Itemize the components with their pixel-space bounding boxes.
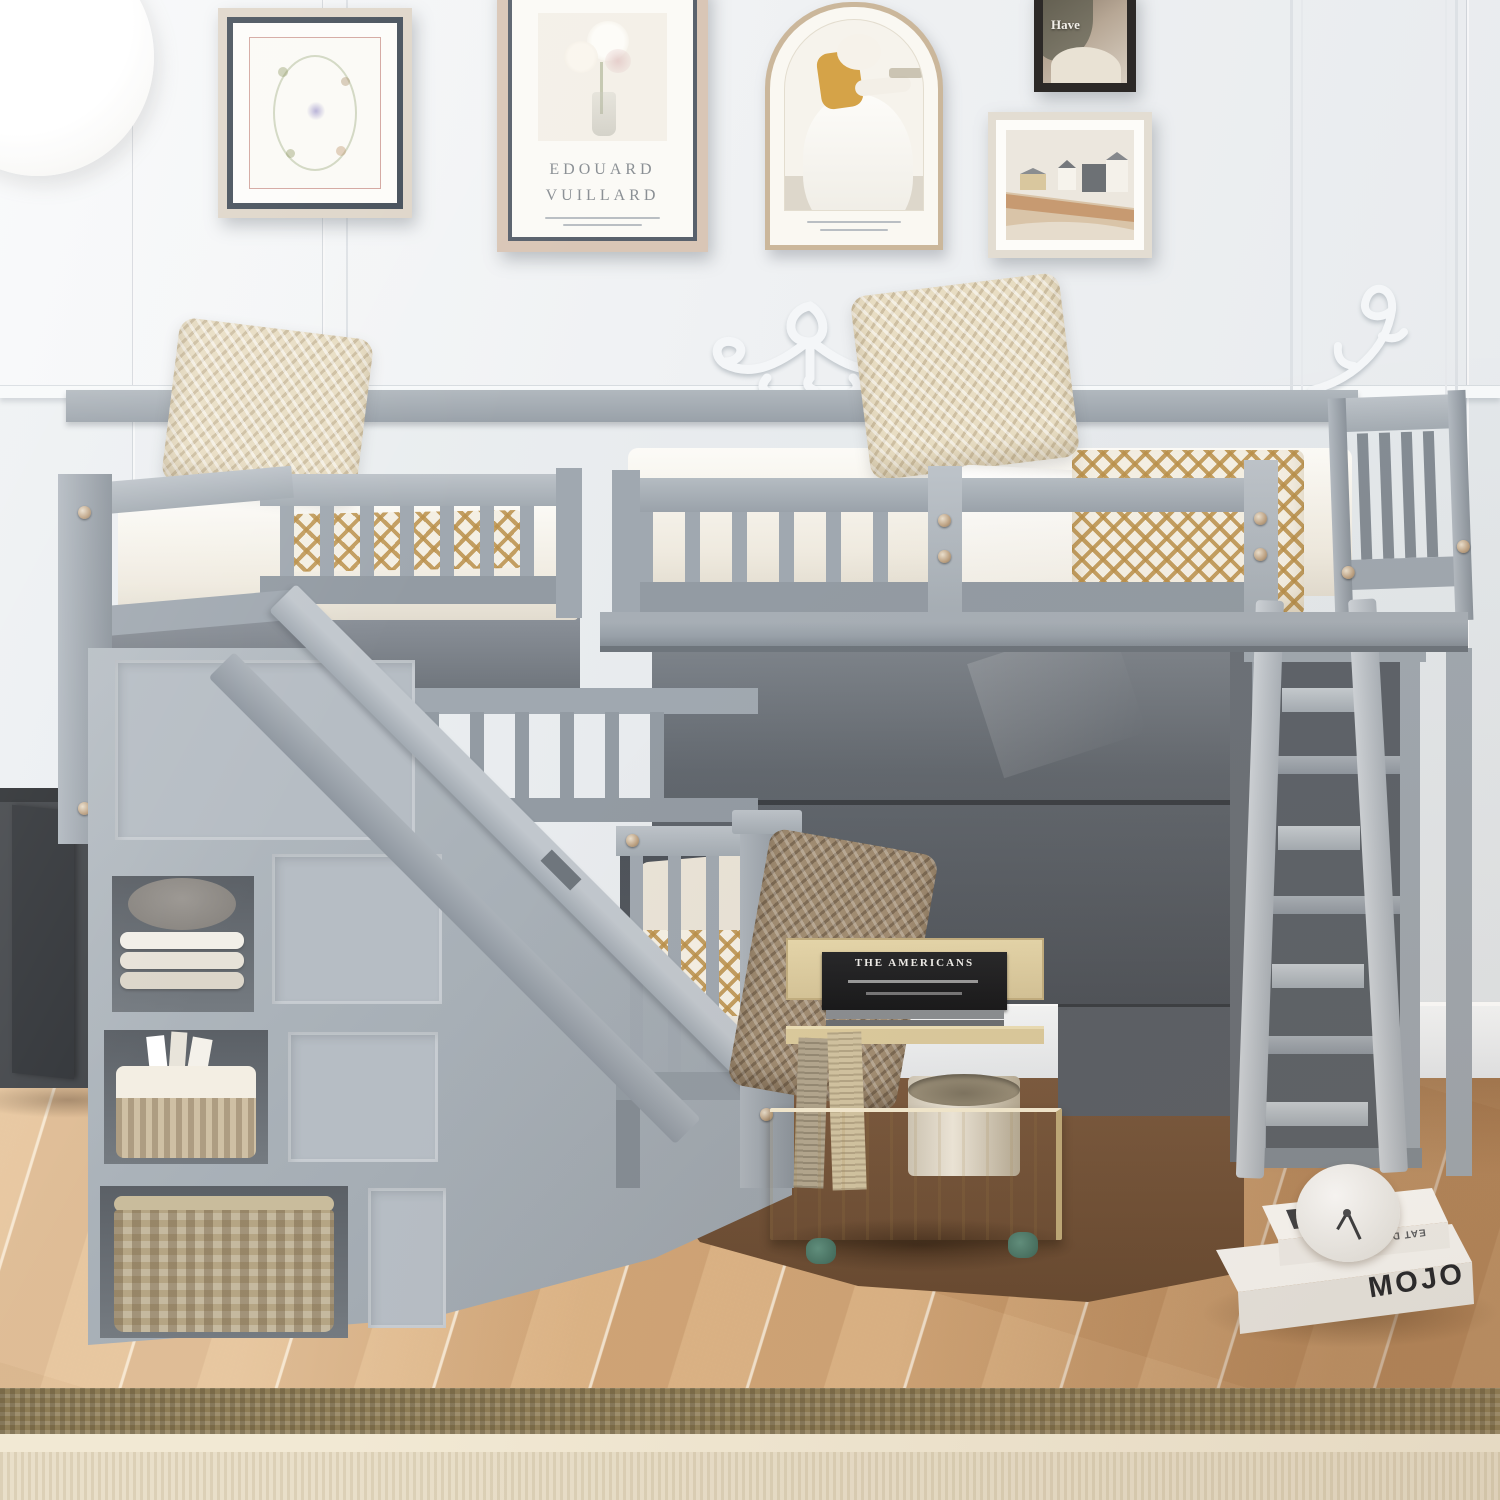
loft-platform-beam [600, 612, 1468, 652]
basket-liner [116, 1066, 256, 1100]
guard-rail-top [260, 474, 572, 506]
figure-dress [803, 94, 913, 211]
drawer-cup-opening [908, 1074, 1020, 1106]
book-cover-scribble [848, 980, 978, 983]
screw [626, 834, 639, 847]
book-stack-group: EAT DRINK NAP MOJO [1200, 1160, 1500, 1350]
drawer-book-title: THE AMERICANS [822, 957, 1007, 969]
lower-bed-white-pillow [637, 853, 753, 940]
ladder-rung [1282, 688, 1356, 712]
mini-artwork-figure [1051, 47, 1121, 83]
guard-rail-slat [440, 504, 454, 580]
shelf-board [1252, 896, 1420, 914]
mini-dark-artwork: Have [1043, 0, 1127, 83]
poster-title-line1: EDOUARD [512, 157, 693, 183]
botanical-center-flower [307, 101, 325, 121]
poster-artwork-flowers [538, 13, 667, 141]
flower-vase [592, 92, 616, 136]
lower-bed-side-slat [605, 712, 619, 800]
mini-dark-text: Have [1051, 17, 1080, 33]
picture-frame-vuillard: EDOUARD VUILLARD [497, 0, 708, 252]
guard-rail-slat [638, 506, 653, 586]
tv-cabinet-door [12, 805, 74, 1080]
end-board-slat [1401, 432, 1416, 558]
frame-mat [233, 23, 397, 203]
storage-cubby-wicker-basket [100, 1186, 348, 1338]
frame-inner-band: EDOUARD VUILLARD [508, 0, 697, 241]
desk-clock [1296, 1164, 1400, 1262]
pullout-drawer-front [770, 1108, 1062, 1240]
rug-border-band [0, 1388, 1500, 1434]
poster-caption-line [563, 224, 643, 226]
guard-rail-slat [520, 504, 534, 580]
rug-inner-trim [0, 1434, 1500, 1452]
poster-caption-line [545, 217, 661, 219]
stair-panel-recess [288, 1032, 438, 1162]
wicker-basket-body [114, 1210, 334, 1332]
ladder-rung [1278, 826, 1360, 850]
lower-bed-side-slat [560, 712, 574, 800]
frame-mat [996, 120, 1144, 250]
loft-right-leg [1446, 648, 1472, 1176]
guard-rail-post [556, 468, 582, 618]
screw [938, 550, 951, 563]
guard-rail-slat [400, 504, 414, 580]
guard-rail-slat [732, 506, 747, 586]
folded-linen [120, 952, 244, 969]
ladder-rung [1266, 1102, 1368, 1126]
lower-bed-side-slat [515, 712, 529, 800]
basket-woven-body [116, 1098, 256, 1158]
stair-panel-recess [368, 1188, 446, 1328]
figure-arm [854, 75, 911, 97]
folded-linen [120, 932, 244, 949]
figure-tray [889, 68, 923, 78]
end-board-top-rail [1334, 394, 1465, 433]
footboard-leg [616, 1100, 640, 1188]
arched-caption-line [820, 229, 887, 231]
guard-rail-slat [360, 504, 374, 580]
guard-rail-slat [280, 504, 294, 580]
lower-bed-side-slat [650, 712, 664, 800]
guard-rail-slat [685, 506, 700, 586]
flower-blob-pink [605, 49, 631, 73]
rug-field [0, 1452, 1500, 1500]
book-edge [826, 1010, 1004, 1019]
book-cover-scribble [866, 992, 962, 995]
area-rug [0, 1388, 1500, 1500]
plaster-scroll-ornament-right [1296, 266, 1428, 408]
arched-caption-line [807, 221, 901, 223]
ladder-rung [1272, 964, 1364, 988]
knit-pillow-right-loft [850, 272, 1081, 481]
folded-linen [120, 972, 244, 989]
picture-frame-botanical [218, 8, 412, 218]
room-scene: EDOUARD VUILLARD Have [0, 0, 1500, 1500]
end-board-slat [1423, 431, 1438, 557]
poster-paper: EDOUARD VUILLARD [512, 0, 693, 237]
clock-center-dot [1343, 1209, 1351, 1217]
guard-rail-post [928, 466, 962, 630]
storage-cubby-basket-papers [104, 1030, 268, 1164]
screw [1254, 548, 1267, 561]
under-loft-closed-drawer [1058, 1004, 1240, 1116]
botanical-speck [341, 77, 350, 86]
landscape-artwork [1006, 130, 1134, 240]
figure-bonnet [837, 34, 881, 70]
drawer-caster-wheel [1008, 1232, 1038, 1258]
screw [78, 506, 91, 519]
drawer-book-black: THE AMERICANS [822, 952, 1007, 1010]
picture-frame-mini-dark: Have [1034, 0, 1136, 92]
drawer-caster-wheel [806, 1238, 836, 1264]
guard-rail-slat [480, 504, 494, 580]
end-board-bottom-rail [1339, 556, 1470, 591]
guard-rail-slat [873, 506, 888, 586]
guard-rail-slat [826, 506, 841, 586]
end-board-slat [1357, 433, 1372, 559]
frame-inner-band [227, 17, 403, 209]
picture-frame-arched [765, 2, 943, 250]
screw [938, 514, 951, 527]
end-board-slat [1379, 433, 1394, 559]
botanical-speck [336, 146, 346, 156]
guard-rail-slat [320, 504, 334, 580]
guard-rail-post [612, 470, 640, 622]
poster-title-line2: VUILLARD [512, 183, 693, 209]
arched-paper [770, 7, 938, 245]
guard-rail-slat [779, 506, 794, 586]
screw [1254, 512, 1267, 525]
lower-bed-side-rail-top [408, 688, 758, 714]
picture-frame-landscape [988, 112, 1152, 258]
felt-hat [128, 878, 236, 930]
storage-cubby-linens [112, 876, 254, 1012]
botanical-print [249, 37, 381, 189]
flower-blob [564, 41, 598, 73]
arched-artwork [784, 19, 924, 211]
